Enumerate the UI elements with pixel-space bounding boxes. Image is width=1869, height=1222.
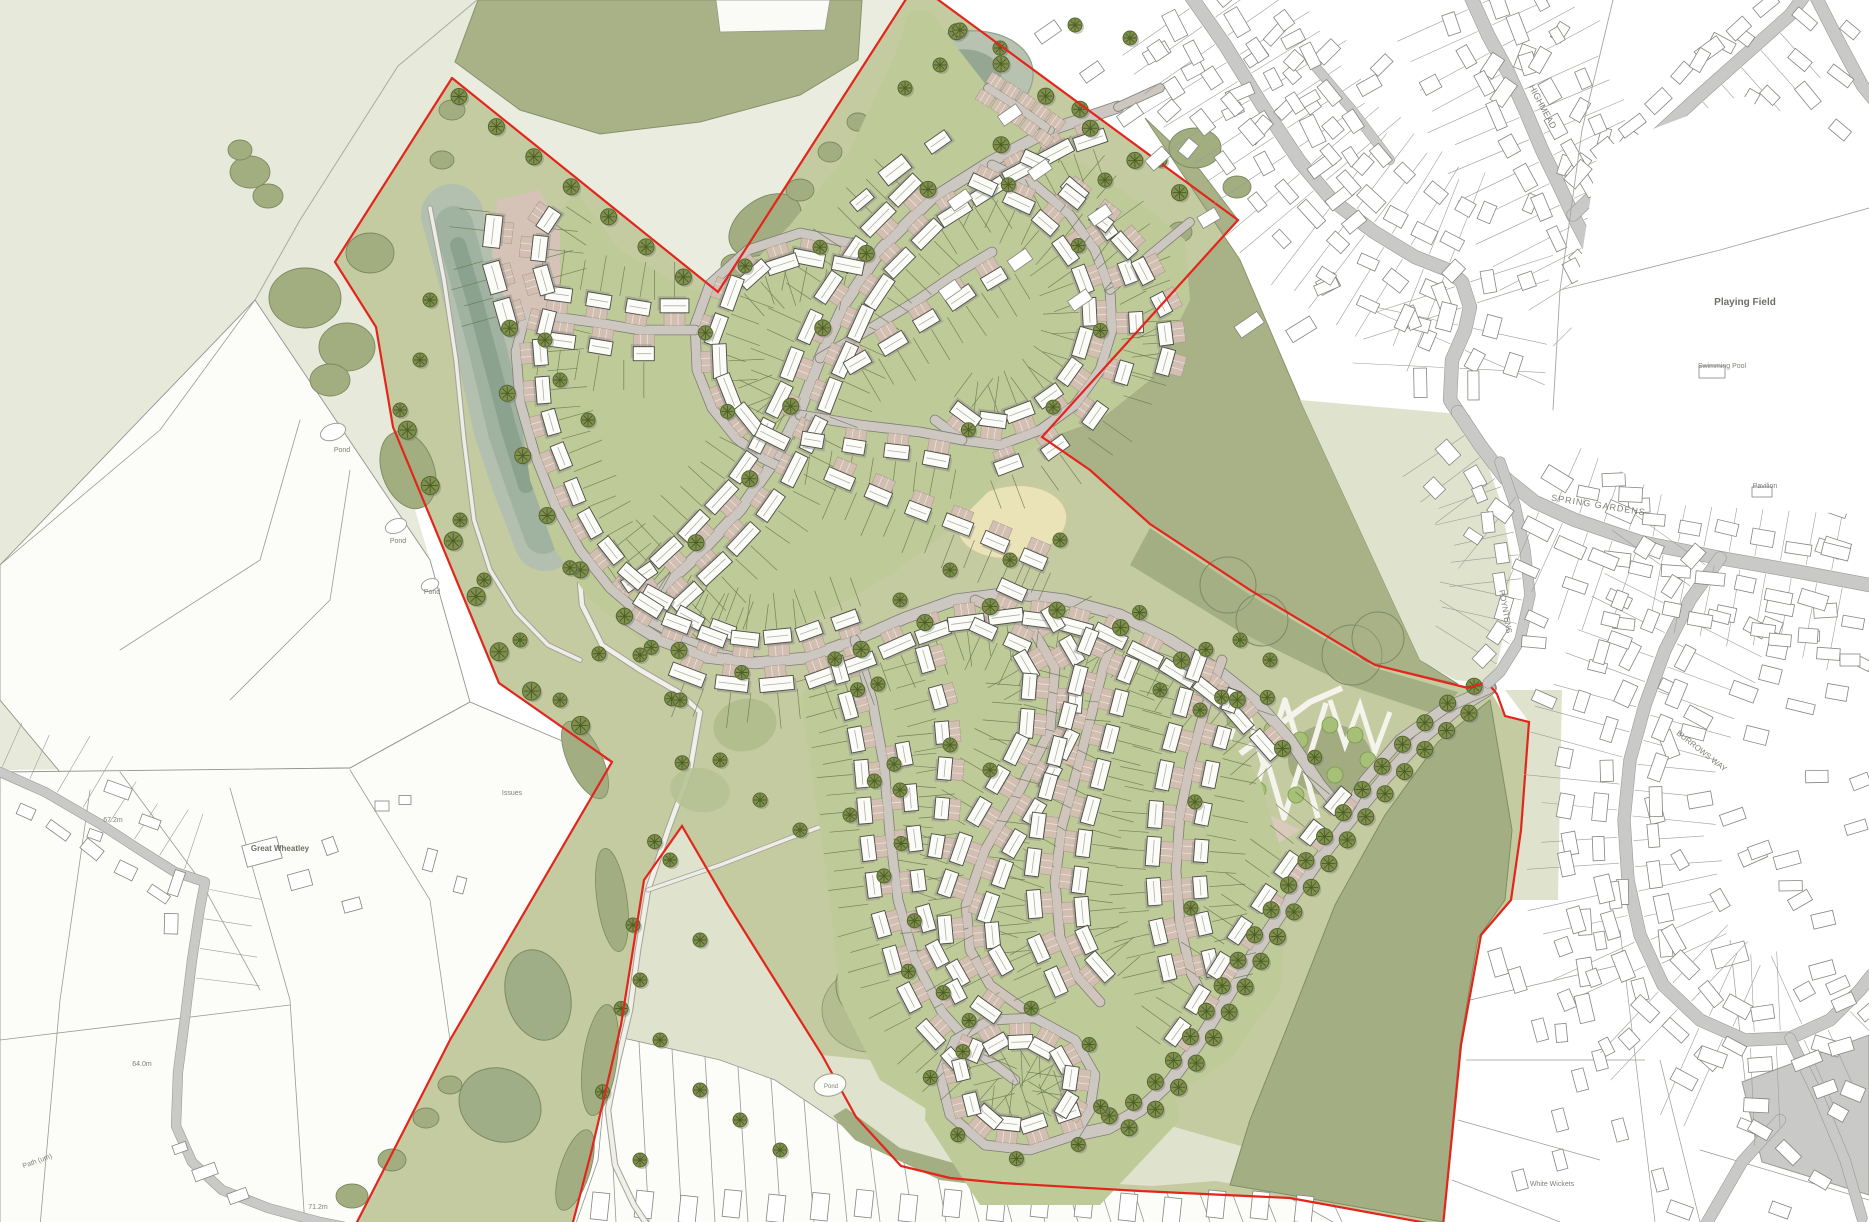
svg-text:Playing Field: Playing Field [1714, 297, 1776, 308]
svg-text:Pond: Pond [824, 1084, 838, 1090]
svg-text:67.2m: 67.2m [103, 817, 123, 824]
svg-text:Pavilion: Pavilion [1753, 483, 1778, 490]
svg-text:Issues: Issues [502, 790, 523, 797]
svg-text:Pond: Pond [390, 538, 406, 545]
svg-text:Pond: Pond [424, 589, 440, 596]
svg-text:Great Wheatley: Great Wheatley [251, 844, 310, 853]
svg-text:Pond: Pond [334, 447, 350, 454]
svg-text:71.2m: 71.2m [308, 1204, 328, 1211]
svg-text:White Wickets: White Wickets [1530, 1181, 1575, 1188]
svg-text:64.0m: 64.0m [132, 1061, 152, 1068]
svg-text:Swimming Pool: Swimming Pool [1698, 363, 1747, 370]
